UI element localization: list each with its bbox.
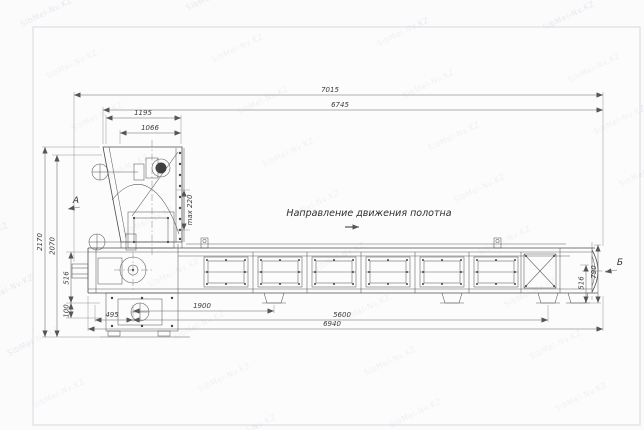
conveyor-drawing-canvas: SibMel-Nv.KZ — [0, 0, 644, 430]
drawing-page: SibMel-Nv.KZ — [0, 0, 644, 430]
dim-top-secondary: 6745 — [331, 101, 349, 109]
dim-left-height-inner: 2070 — [49, 237, 57, 255]
dim-hopper-opening: 1066 — [141, 124, 159, 132]
dim-bottom-first: 495 — [105, 311, 119, 319]
dim-hopper-width: 1195 — [134, 109, 152, 117]
dim-bottom-leg-spacing: 1900 — [193, 302, 211, 310]
dim-left-belt-height: 516 — [63, 271, 71, 285]
dim-bottom-overall: 6940 — [323, 320, 341, 328]
view-a-label: А — [72, 196, 79, 206]
view-b-label: Б — [617, 258, 623, 268]
dim-bottom-frame-span: 5600 — [333, 311, 351, 319]
dim-hopper-max-opening: max 220 — [186, 194, 194, 225]
dim-right-belt-height: 516 — [578, 276, 586, 290]
dim-left-foot-offset: 100 — [63, 304, 71, 318]
dim-top-overall: 7015 — [321, 86, 339, 94]
dim-left-height-overall: 2170 — [36, 233, 44, 251]
dim-right-end-height: 790 — [590, 265, 598, 279]
belt-direction-text: Направление движения полотна — [286, 208, 451, 219]
